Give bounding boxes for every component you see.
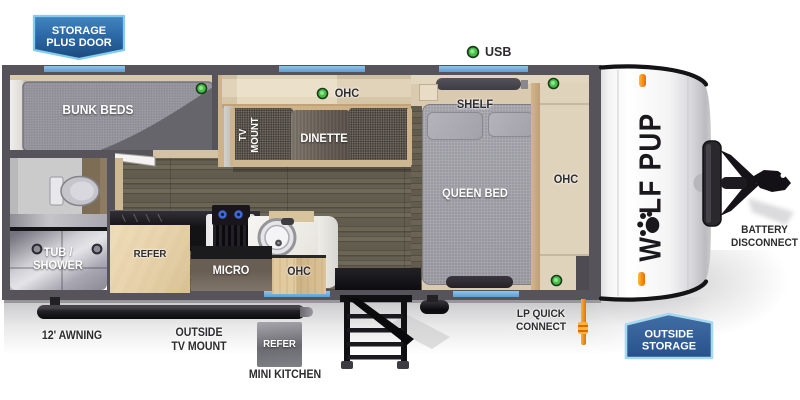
svg-text:PLUS DOOR: PLUS DOOR [46,37,111,49]
svg-text:OUTSIDE: OUTSIDE [645,329,694,341]
svg-text:STORAGE: STORAGE [52,25,106,37]
svg-text:STORAGE: STORAGE [642,341,696,353]
